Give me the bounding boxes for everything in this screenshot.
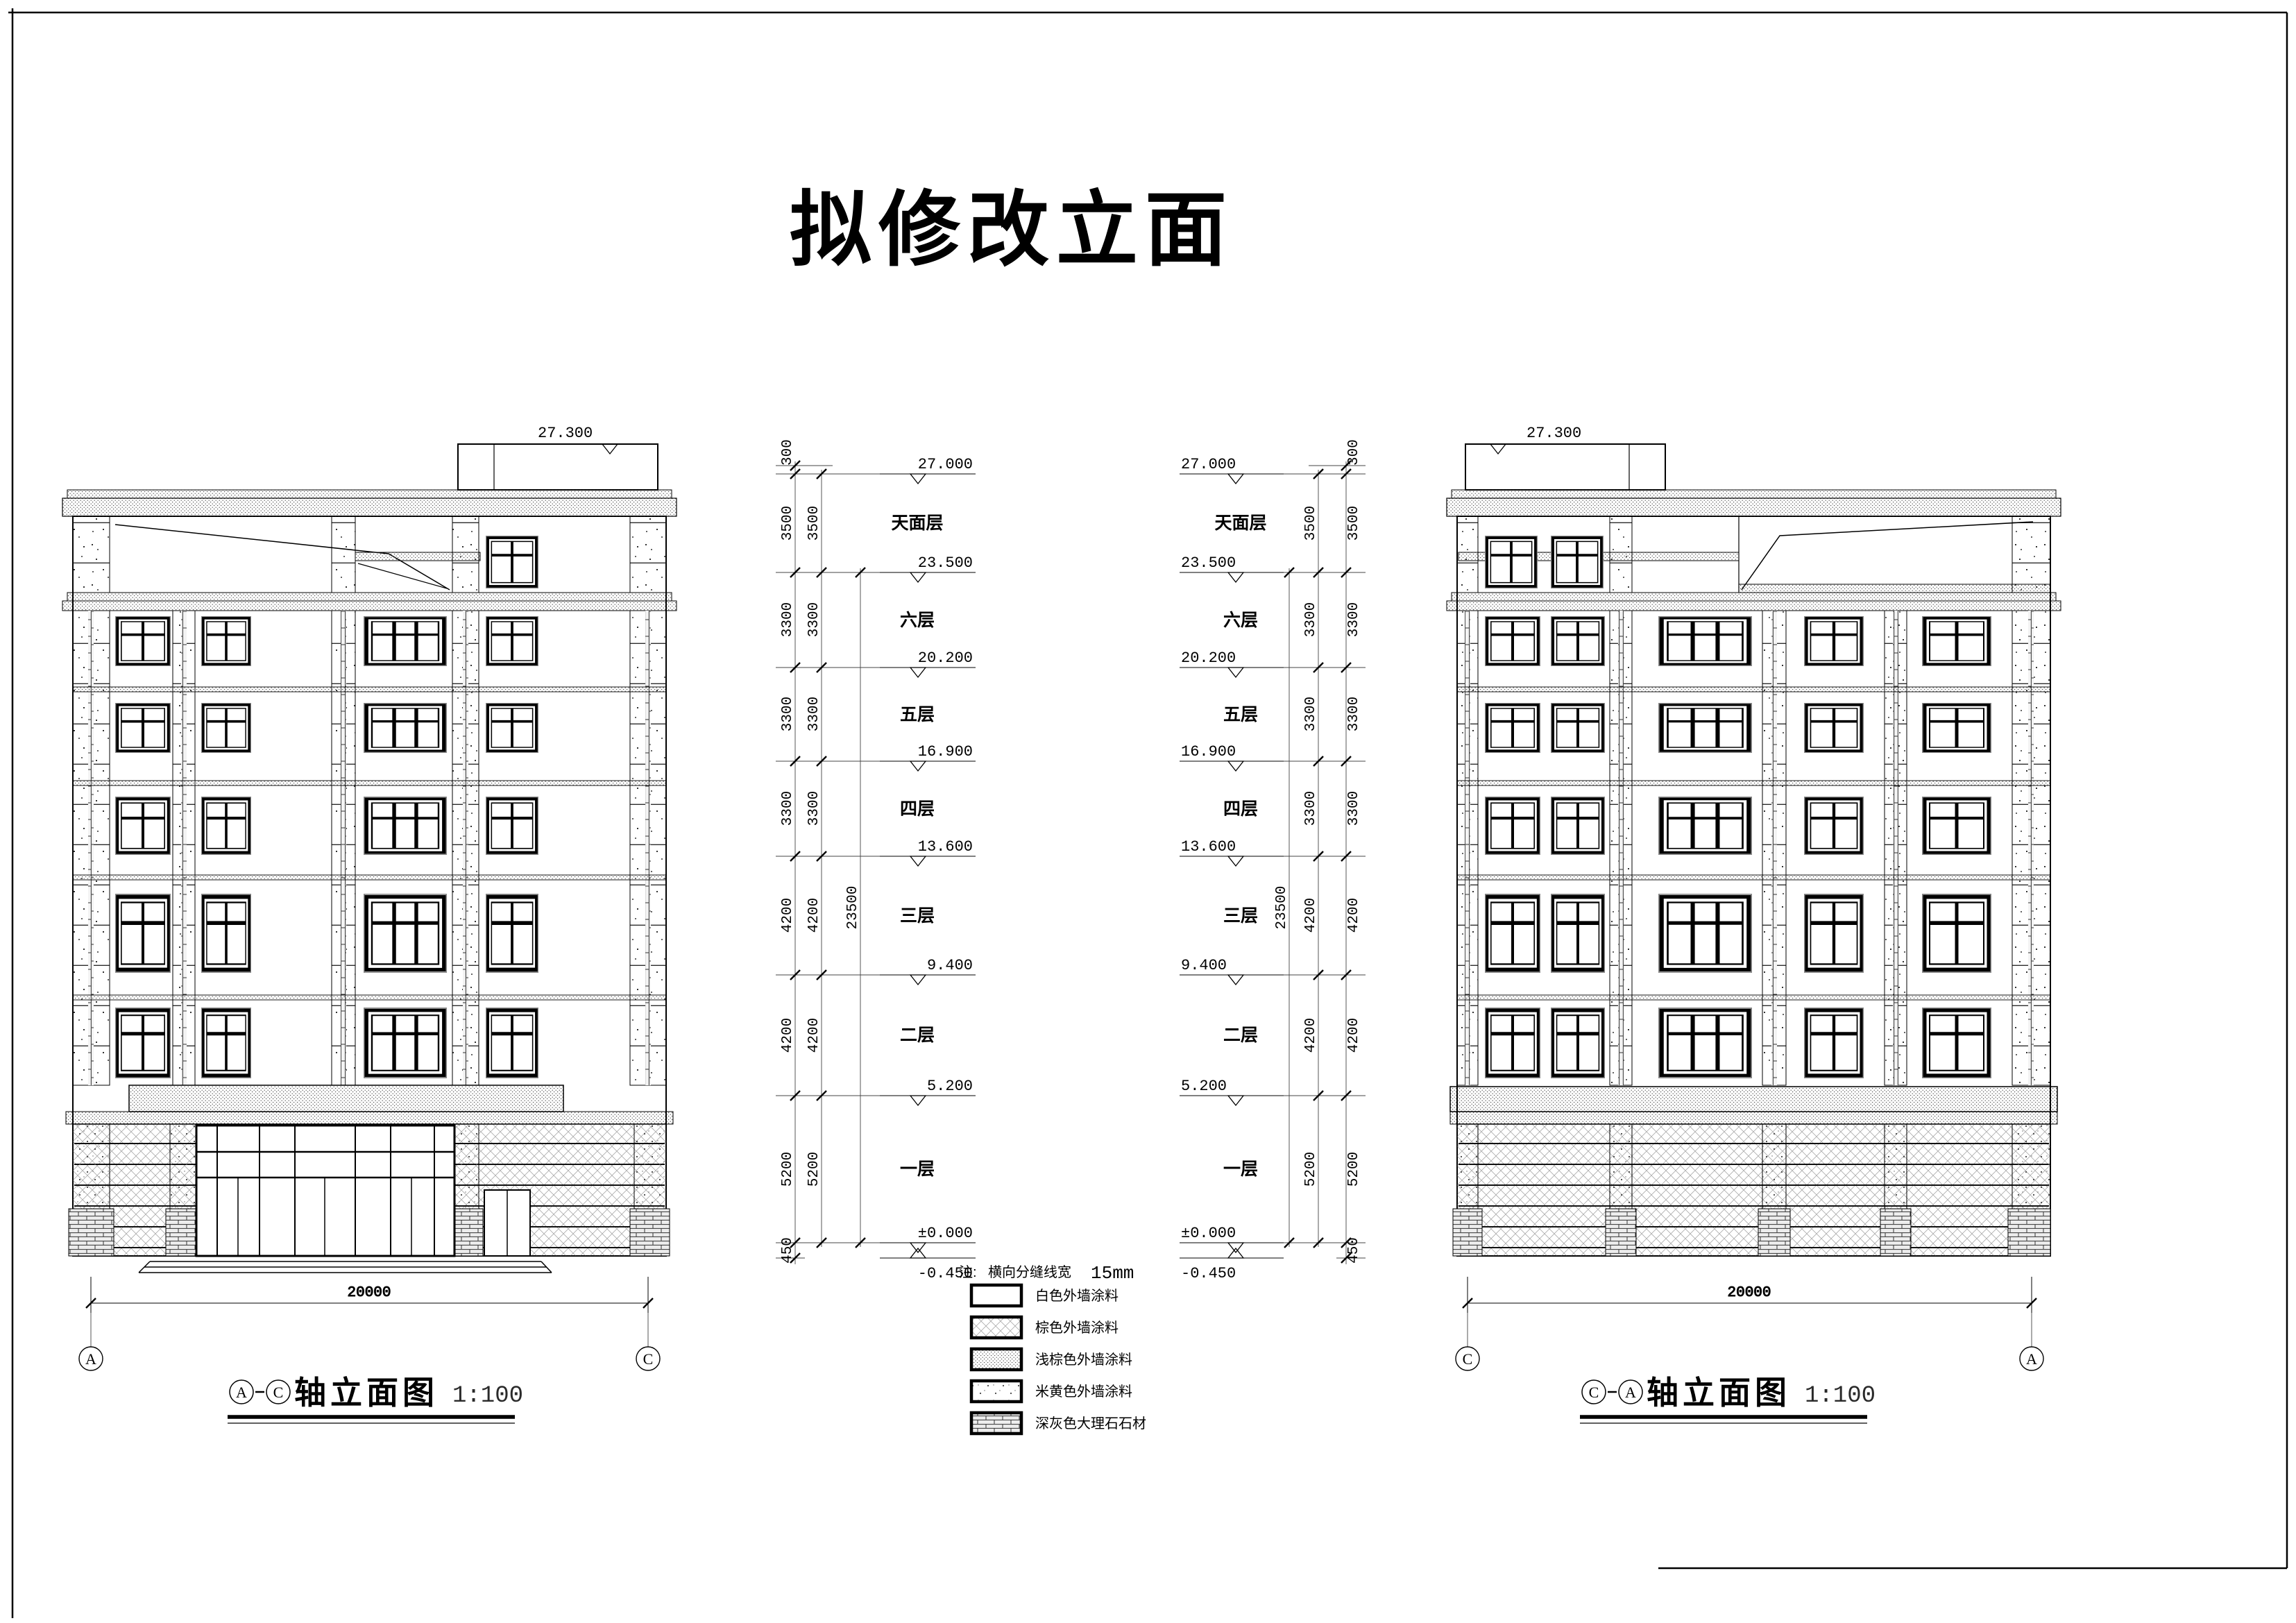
- roof-floor-window: [1485, 536, 1537, 588]
- svg-text:五层: 五层: [1223, 705, 1258, 724]
- elevation-drawing: 拟修改立面 27.300: [0, 0, 2296, 1623]
- level-marks: 27.000 23.500 20.200 16.900 13.600 9.400…: [1180, 456, 1284, 1282]
- svg-text:C: C: [1463, 1350, 1473, 1368]
- ground-floor: [69, 1124, 670, 1273]
- svg-text:4200: 4200: [806, 898, 822, 933]
- svg-text:4200: 4200: [1346, 898, 1362, 933]
- main-cornice: [67, 490, 672, 498]
- caption-c-a: C A 轴立面图 1:100: [1580, 1375, 1876, 1423]
- svg-text:C: C: [643, 1350, 654, 1368]
- svg-text:3300: 3300: [1346, 791, 1362, 826]
- svg-text:A: A: [2026, 1350, 2037, 1368]
- axis-c: C: [1456, 1313, 1479, 1370]
- span-dimension: 20000: [1463, 1277, 2036, 1313]
- svg-text:5200: 5200: [806, 1152, 822, 1187]
- page-title: 拟修改立面: [790, 185, 1234, 276]
- svg-text:23.500: 23.500: [1181, 554, 1236, 572]
- svg-text:3500: 3500: [780, 506, 796, 541]
- legend-item: 深灰色大理石石材: [971, 1413, 1146, 1434]
- stair-penthouse: [458, 444, 658, 490]
- level-ruler-right: 300 3500 3300 3300 3300 4200 4200 5200 4…: [1180, 439, 1366, 1282]
- legend-item: 棕色外墙涂料: [971, 1317, 1119, 1338]
- building-elevation-c-a: 27.300: [1447, 425, 2061, 1370]
- svg-text:5.200: 5.200: [927, 1078, 973, 1095]
- band-23500: [1452, 593, 2056, 601]
- svg-text:3300: 3300: [806, 697, 822, 731]
- svg-text:-0.450: -0.450: [1181, 1265, 1236, 1282]
- dims-inner: 3500 3300 3300 3300 4200 4200 5200: [806, 506, 822, 1187]
- svg-text:白色外墙涂料: 白色外墙涂料: [1035, 1288, 1119, 1304]
- dims-outer: 300 3500 3300 3300 3300 4200 4200 5200 4…: [1346, 439, 1362, 1264]
- svg-text:3300: 3300: [780, 791, 796, 826]
- svg-text:一层: 一层: [900, 1159, 935, 1179]
- main-cornice: [1452, 490, 2056, 498]
- note-label: 注:: [959, 1264, 977, 1280]
- caption-text: 轴立面图: [1647, 1375, 1791, 1411]
- axis-a: A: [2020, 1313, 2043, 1370]
- span-dim-label: 20000: [1727, 1285, 1771, 1301]
- band-5200: [1450, 1087, 2057, 1112]
- svg-text:3300: 3300: [1303, 697, 1319, 731]
- svg-text:20.200: 20.200: [1181, 649, 1236, 667]
- svg-text:3500: 3500: [1346, 506, 1362, 541]
- svg-text:二层: 二层: [900, 1026, 935, 1045]
- svg-text:3300: 3300: [1346, 697, 1362, 731]
- caption-text: 轴立面图: [294, 1375, 439, 1411]
- svg-text:5200: 5200: [1303, 1152, 1319, 1187]
- swatch-brick: [971, 1413, 1021, 1434]
- svg-text:六层: 六层: [1223, 611, 1258, 630]
- span-dim-label: 20000: [347, 1285, 391, 1301]
- side-door: [484, 1190, 530, 1256]
- svg-text:16.900: 16.900: [918, 743, 973, 760]
- svg-text:300: 300: [1346, 439, 1362, 466]
- svg-text:±0.000: ±0.000: [918, 1225, 973, 1242]
- overall-dim: 23500: [845, 885, 861, 929]
- svg-text:450: 450: [780, 1237, 796, 1264]
- svg-text:四层: 四层: [1223, 799, 1258, 819]
- svg-text:3300: 3300: [780, 697, 796, 731]
- svg-text:27.000: 27.000: [918, 456, 973, 473]
- svg-text:450: 450: [1346, 1237, 1362, 1264]
- svg-text:5200: 5200: [780, 1152, 796, 1187]
- swatch-crosshatch: [971, 1317, 1021, 1338]
- dims-outer: 300 3500 3300 3300 3300 4200 4200 5200 4…: [780, 439, 796, 1264]
- overall-dim: 23500: [1274, 885, 1290, 929]
- dim-ticks: [790, 461, 865, 1263]
- svg-text:三层: 三层: [1223, 906, 1258, 926]
- axis-c: C: [636, 1313, 660, 1370]
- swatch-stipple-sparse: [971, 1381, 1021, 1402]
- svg-text:4200: 4200: [780, 1018, 796, 1053]
- svg-text:A: A: [85, 1350, 96, 1368]
- svg-text:9.400: 9.400: [927, 957, 973, 974]
- drawing-sheet: 拟修改立面 27.300: [0, 0, 2296, 1623]
- svg-text:A: A: [236, 1384, 247, 1401]
- building-elevation-a-c: 27.300: [62, 425, 677, 1370]
- dims-inner: 3500 3300 3300 3300 4200 4200 5200: [1303, 506, 1319, 1187]
- svg-text:浅棕色外墙涂料: 浅棕色外墙涂料: [1035, 1352, 1132, 1368]
- svg-text:3300: 3300: [1303, 791, 1319, 826]
- svg-text:13.600: 13.600: [918, 838, 973, 856]
- svg-text:3500: 3500: [1303, 506, 1319, 541]
- svg-text:米黄色外墙涂料: 米黄色外墙涂料: [1035, 1384, 1132, 1400]
- svg-text:9.400: 9.400: [1181, 957, 1227, 974]
- svg-text:三层: 三层: [900, 906, 935, 926]
- svg-text:深灰色大理石石材: 深灰色大理石石材: [1035, 1416, 1146, 1431]
- dim-ticks: [1284, 461, 1351, 1263]
- legend-item: 白色外墙涂料: [971, 1285, 1119, 1306]
- band-23500: [67, 593, 672, 601]
- svg-text:天面层: 天面层: [1214, 513, 1266, 533]
- caption-a-c: A C 轴立面图 1:100: [228, 1375, 523, 1423]
- svg-text:5200: 5200: [1346, 1152, 1362, 1187]
- material-legend: 注: 横向分缝线宽 15mm 白色外墙涂料 棕色外墙涂料 浅棕色外墙涂料 米黄色…: [959, 1263, 1146, 1434]
- storefront-entrance: [196, 1125, 454, 1256]
- entrance-steps: [139, 1261, 552, 1273]
- legend-item: 米黄色外墙涂料: [971, 1381, 1132, 1402]
- entrance-canopy: [129, 1085, 563, 1112]
- level-marks: 27.000 23.500 20.200 16.900 13.600 9.400…: [880, 456, 976, 1282]
- svg-text:六层: 六层: [900, 611, 935, 630]
- svg-text:二层: 二层: [1223, 1026, 1258, 1045]
- svg-text:27.000: 27.000: [1181, 456, 1236, 473]
- svg-text:3300: 3300: [780, 602, 796, 637]
- svg-text:4200: 4200: [806, 1018, 822, 1053]
- svg-text:20.200: 20.200: [918, 649, 973, 667]
- svg-text:300: 300: [780, 439, 796, 466]
- svg-text:16.900: 16.900: [1181, 743, 1236, 760]
- svg-text:4200: 4200: [1303, 1018, 1319, 1053]
- svg-text:天面层: 天面层: [891, 513, 943, 533]
- svg-text:27.300: 27.300: [538, 425, 593, 442]
- svg-text:一层: 一层: [1223, 1159, 1258, 1179]
- span-dimension: 20000: [86, 1277, 653, 1313]
- svg-text:3300: 3300: [806, 791, 822, 826]
- axis-a: A: [79, 1313, 103, 1370]
- caption-scale: 1:100: [452, 1383, 523, 1409]
- roof-floor-window: [1551, 536, 1603, 588]
- svg-text:C: C: [1589, 1384, 1599, 1401]
- svg-text:13.600: 13.600: [1181, 838, 1236, 856]
- svg-text:5.200: 5.200: [1181, 1078, 1227, 1095]
- svg-text:3300: 3300: [1346, 602, 1362, 637]
- svg-text:4200: 4200: [1346, 1018, 1362, 1053]
- legend-item: 浅棕色外墙涂料: [971, 1349, 1132, 1370]
- note-value: 15mm: [1091, 1263, 1134, 1284]
- svg-text:4200: 4200: [780, 898, 796, 933]
- svg-text:3500: 3500: [806, 506, 822, 541]
- svg-text:棕色外墙涂料: 棕色外墙涂料: [1035, 1320, 1119, 1336]
- swatch-white: [971, 1285, 1021, 1306]
- svg-text:27.300: 27.300: [1527, 425, 1581, 442]
- svg-text:3300: 3300: [806, 602, 822, 637]
- svg-text:23.500: 23.500: [918, 554, 973, 572]
- svg-text:3300: 3300: [1303, 602, 1319, 637]
- svg-text:五层: 五层: [900, 705, 935, 724]
- level-ruler-left: 300 3500 3300 3300 3300 4200 4200 5200 4…: [776, 439, 976, 1282]
- svg-text:4200: 4200: [1303, 898, 1319, 933]
- svg-text:A: A: [1625, 1384, 1636, 1401]
- roof-floor-window: [486, 536, 538, 588]
- svg-text:±0.000: ±0.000: [1181, 1225, 1236, 1242]
- swatch-stipple-dense: [971, 1349, 1021, 1370]
- svg-text:四层: 四层: [900, 799, 935, 819]
- ground-floor: [1453, 1124, 2050, 1256]
- svg-text:C: C: [273, 1384, 284, 1401]
- caption-scale: 1:100: [1805, 1383, 1876, 1409]
- note-text: 横向分缝线宽: [988, 1264, 1071, 1280]
